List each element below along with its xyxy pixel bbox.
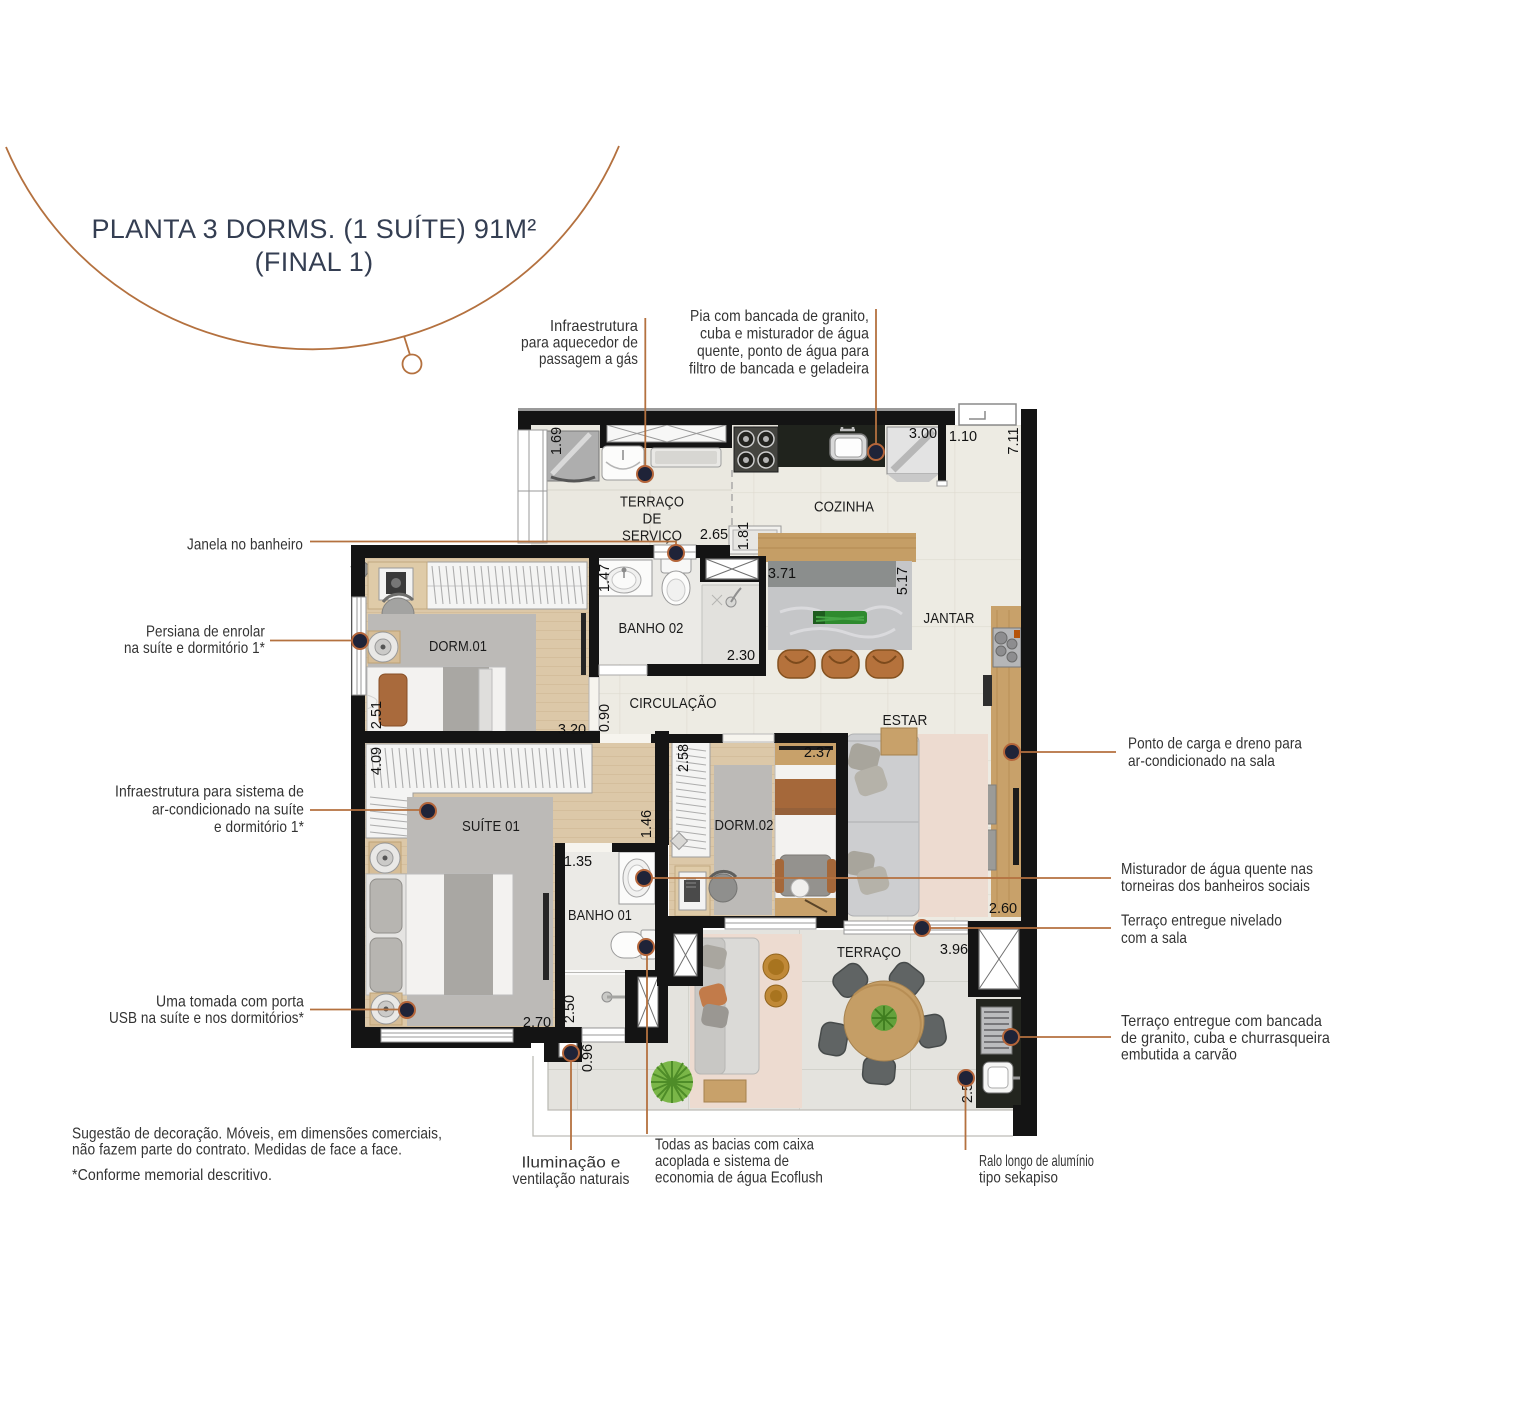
svg-text:7.11: 7.11 [1006,427,1022,454]
svg-text:Infraestrutura: Infraestrutura [550,318,638,335]
svg-text:Ralo longo de alumínio: Ralo longo de alumínio [979,1153,1094,1170]
svg-text:2.51: 2.51 [369,701,385,729]
svg-text:filtro de bancada e geladeira: filtro de bancada e geladeira [689,361,869,378]
svg-text:2.65: 2.65 [700,527,728,543]
svg-text:Sugestão de decoração. Móveis,: Sugestão de decoração. Móveis, em dimens… [72,1126,442,1143]
svg-text:2.50: 2.50 [562,995,578,1023]
svg-text:1.10: 1.10 [949,429,977,445]
svg-text:TERRAÇO: TERRAÇO [620,494,684,511]
svg-text:ESTAR: ESTAR [883,712,928,729]
svg-text:cuba e misturador de água: cuba e misturador de água [700,326,869,343]
svg-text:tipo sekapiso: tipo sekapiso [979,1170,1058,1187]
svg-text:USB na suíte e nos dormitórios: USB na suíte e nos dormitórios* [109,1010,304,1027]
svg-text:embutida a carvão: embutida a carvão [1121,1047,1237,1064]
svg-text:3.00: 3.00 [909,426,937,442]
svg-text:economia de água Ecoflush: economia de água Ecoflush [655,1170,823,1187]
svg-text:Terraço entregue nivelado: Terraço entregue nivelado [1121,913,1282,930]
svg-text:2.58: 2.58 [676,744,692,772]
svg-text:com a sala: com a sala [1121,930,1187,947]
svg-text:JANTAR: JANTAR [924,610,975,627]
svg-text:3.96: 3.96 [940,942,968,958]
svg-text:5.17: 5.17 [895,567,911,595]
svg-text:BANHO 01: BANHO 01 [568,907,632,924]
svg-text:*Conforme memorial descritivo.: *Conforme memorial descritivo. [72,1167,272,1184]
svg-text:Pia com bancada de granito,: Pia com bancada de granito, [690,308,869,325]
svg-text:ar-condicionado na sala: ar-condicionado na sala [1128,753,1275,770]
svg-text:DORM.02: DORM.02 [715,817,774,834]
svg-text:Todas as bacias com caixa: Todas as bacias com caixa [655,1137,814,1154]
svg-text:3.20: 3.20 [558,722,586,738]
svg-text:3.71: 3.71 [768,566,796,582]
svg-text:Infraestrutura para sistema de: Infraestrutura para sistema de [115,784,304,801]
svg-text:1.69: 1.69 [549,427,565,455]
svg-text:torneiras dos banheiros sociai: torneiras dos banheiros sociais [1121,878,1310,895]
svg-text:Terraço entregue com bancada: Terraço entregue com bancada [1121,1013,1322,1030]
svg-text:CIRCULAÇÃO: CIRCULAÇÃO [630,695,717,712]
svg-text:2.37: 2.37 [804,745,832,761]
svg-text:4.09: 4.09 [369,747,385,775]
svg-text:1.81: 1.81 [736,522,752,550]
svg-text:1.47: 1.47 [597,564,613,592]
svg-text:Persiana de enrolar: Persiana de enrolar [146,624,265,641]
svg-text:PLANTA 3 DORMS. (1 SUÍTE) 91M²: PLANTA 3 DORMS. (1 SUÍTE) 91M² [91,214,536,244]
svg-text:acoplada e sistema de: acoplada e sistema de [655,1153,789,1170]
svg-text:0.90: 0.90 [597,704,613,732]
svg-text:Janela no banheiro: Janela no banheiro [187,537,303,554]
svg-text:2.30: 2.30 [727,648,755,664]
svg-text:1.35: 1.35 [564,854,592,870]
svg-text:ventilação naturais: ventilação naturais [513,1171,630,1188]
svg-text:DE: DE [643,511,662,528]
svg-text:0.96: 0.96 [580,1044,596,1072]
svg-text:SUÍTE 01: SUÍTE 01 [462,818,520,835]
svg-text:ar-condicionado na suíte: ar-condicionado na suíte [152,802,304,819]
svg-text:(FINAL 1): (FINAL 1) [255,247,374,277]
svg-text:1.46: 1.46 [639,810,655,838]
svg-text:de granito, cuba e churrasquei: de granito, cuba e churrasqueira [1121,1030,1330,1047]
svg-text:na suíte e dormitório 1*: na suíte e dormitório 1* [124,640,265,657]
svg-text:BANHO 02: BANHO 02 [619,620,684,637]
svg-text:passagem a gás: passagem a gás [539,351,638,368]
svg-text:Iluminação e: Iluminação e [522,1155,621,1172]
svg-text:Uma tomada com porta: Uma tomada com porta [156,994,304,1011]
svg-text:Misturador de água quente nas: Misturador de água quente nas [1121,861,1313,878]
svg-text:2.70: 2.70 [523,1015,551,1031]
svg-text:COZINHA: COZINHA [814,499,874,516]
svg-text:DORM.01: DORM.01 [429,638,487,655]
svg-text:e dormitório 1*: e dormitório 1* [214,819,304,836]
svg-text:para aquecedor de: para aquecedor de [521,335,638,352]
svg-text:TERRAÇO: TERRAÇO [837,944,901,961]
svg-text:2.60: 2.60 [989,901,1017,917]
svg-text:Ponto de carga e dreno para: Ponto de carga e dreno para [1128,736,1302,753]
svg-text:quente, ponto de água para: quente, ponto de água para [697,343,869,360]
svg-text:não fazem parte do contrato. M: não fazem parte do contrato. Medidas de … [72,1142,402,1159]
